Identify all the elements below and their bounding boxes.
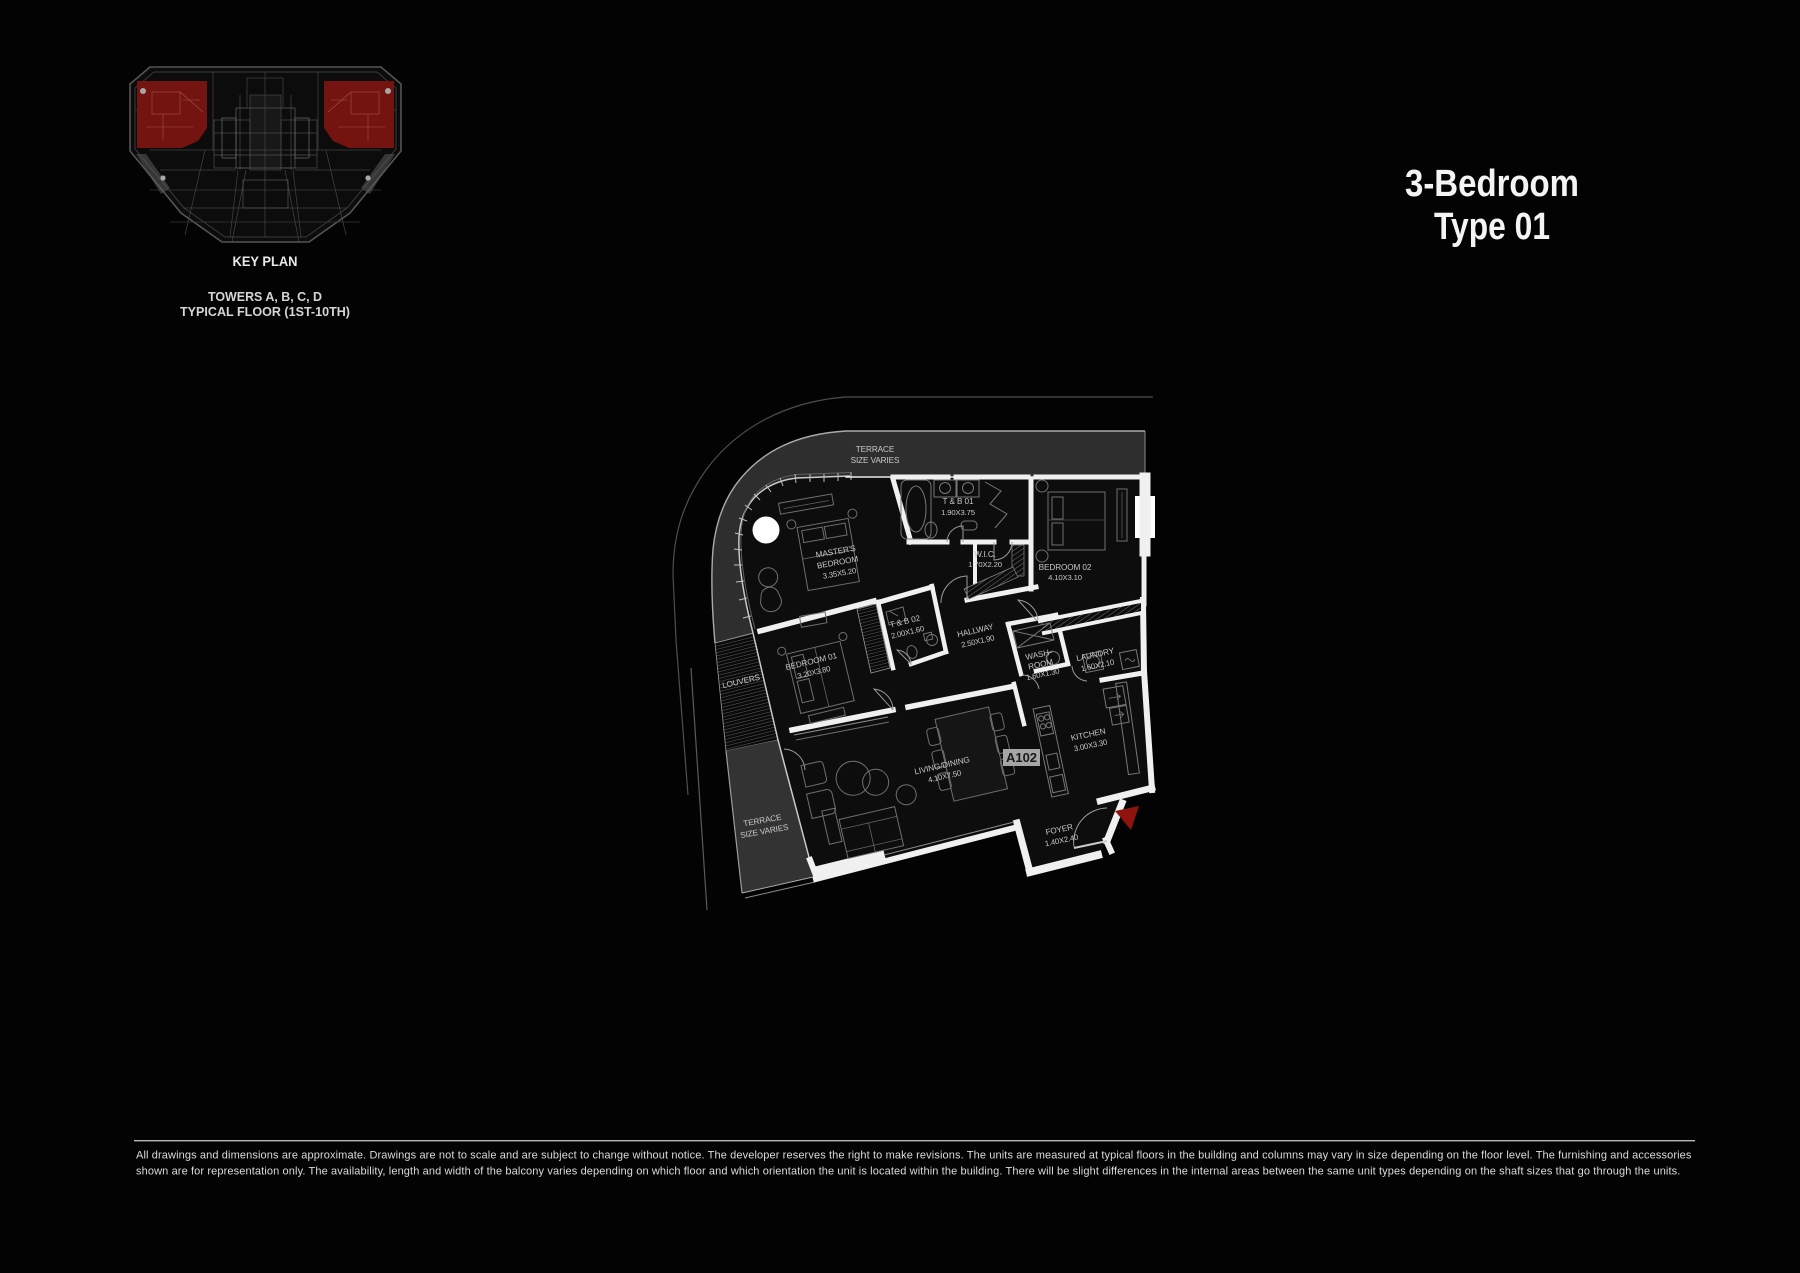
svg-text:TERRACE: TERRACE [856, 445, 895, 454]
svg-text:TOWERS A, B, C, D: TOWERS A, B, C, D [208, 290, 322, 304]
svg-text:All drawings and dimensions ar: All drawings and dimensions are approxim… [136, 1150, 1692, 1162]
svg-text:A102: A102 [1006, 750, 1037, 765]
svg-text:3-Bedroom: 3-Bedroom [1405, 163, 1579, 205]
svg-text:1.70X2.20: 1.70X2.20 [968, 560, 1002, 569]
svg-text:KEY PLAN: KEY PLAN [233, 253, 298, 269]
svg-text:Type 01: Type 01 [1434, 206, 1550, 248]
svg-text:shown are for representation o: shown are for representation only. The a… [136, 1166, 1680, 1178]
svg-text:4.10X3.10: 4.10X3.10 [1048, 573, 1082, 582]
svg-text:T & B 01: T & B 01 [943, 497, 974, 506]
svg-text:SIZE VARIES: SIZE VARIES [851, 456, 900, 465]
svg-text:W.I.C.: W.I.C. [974, 550, 996, 559]
svg-text:1.90X3.75: 1.90X3.75 [941, 508, 975, 517]
svg-text:TYPICAL FLOOR (1ST-10TH): TYPICAL FLOOR (1ST-10TH) [180, 305, 350, 319]
svg-text:BEDROOM 02: BEDROOM 02 [1039, 563, 1092, 572]
